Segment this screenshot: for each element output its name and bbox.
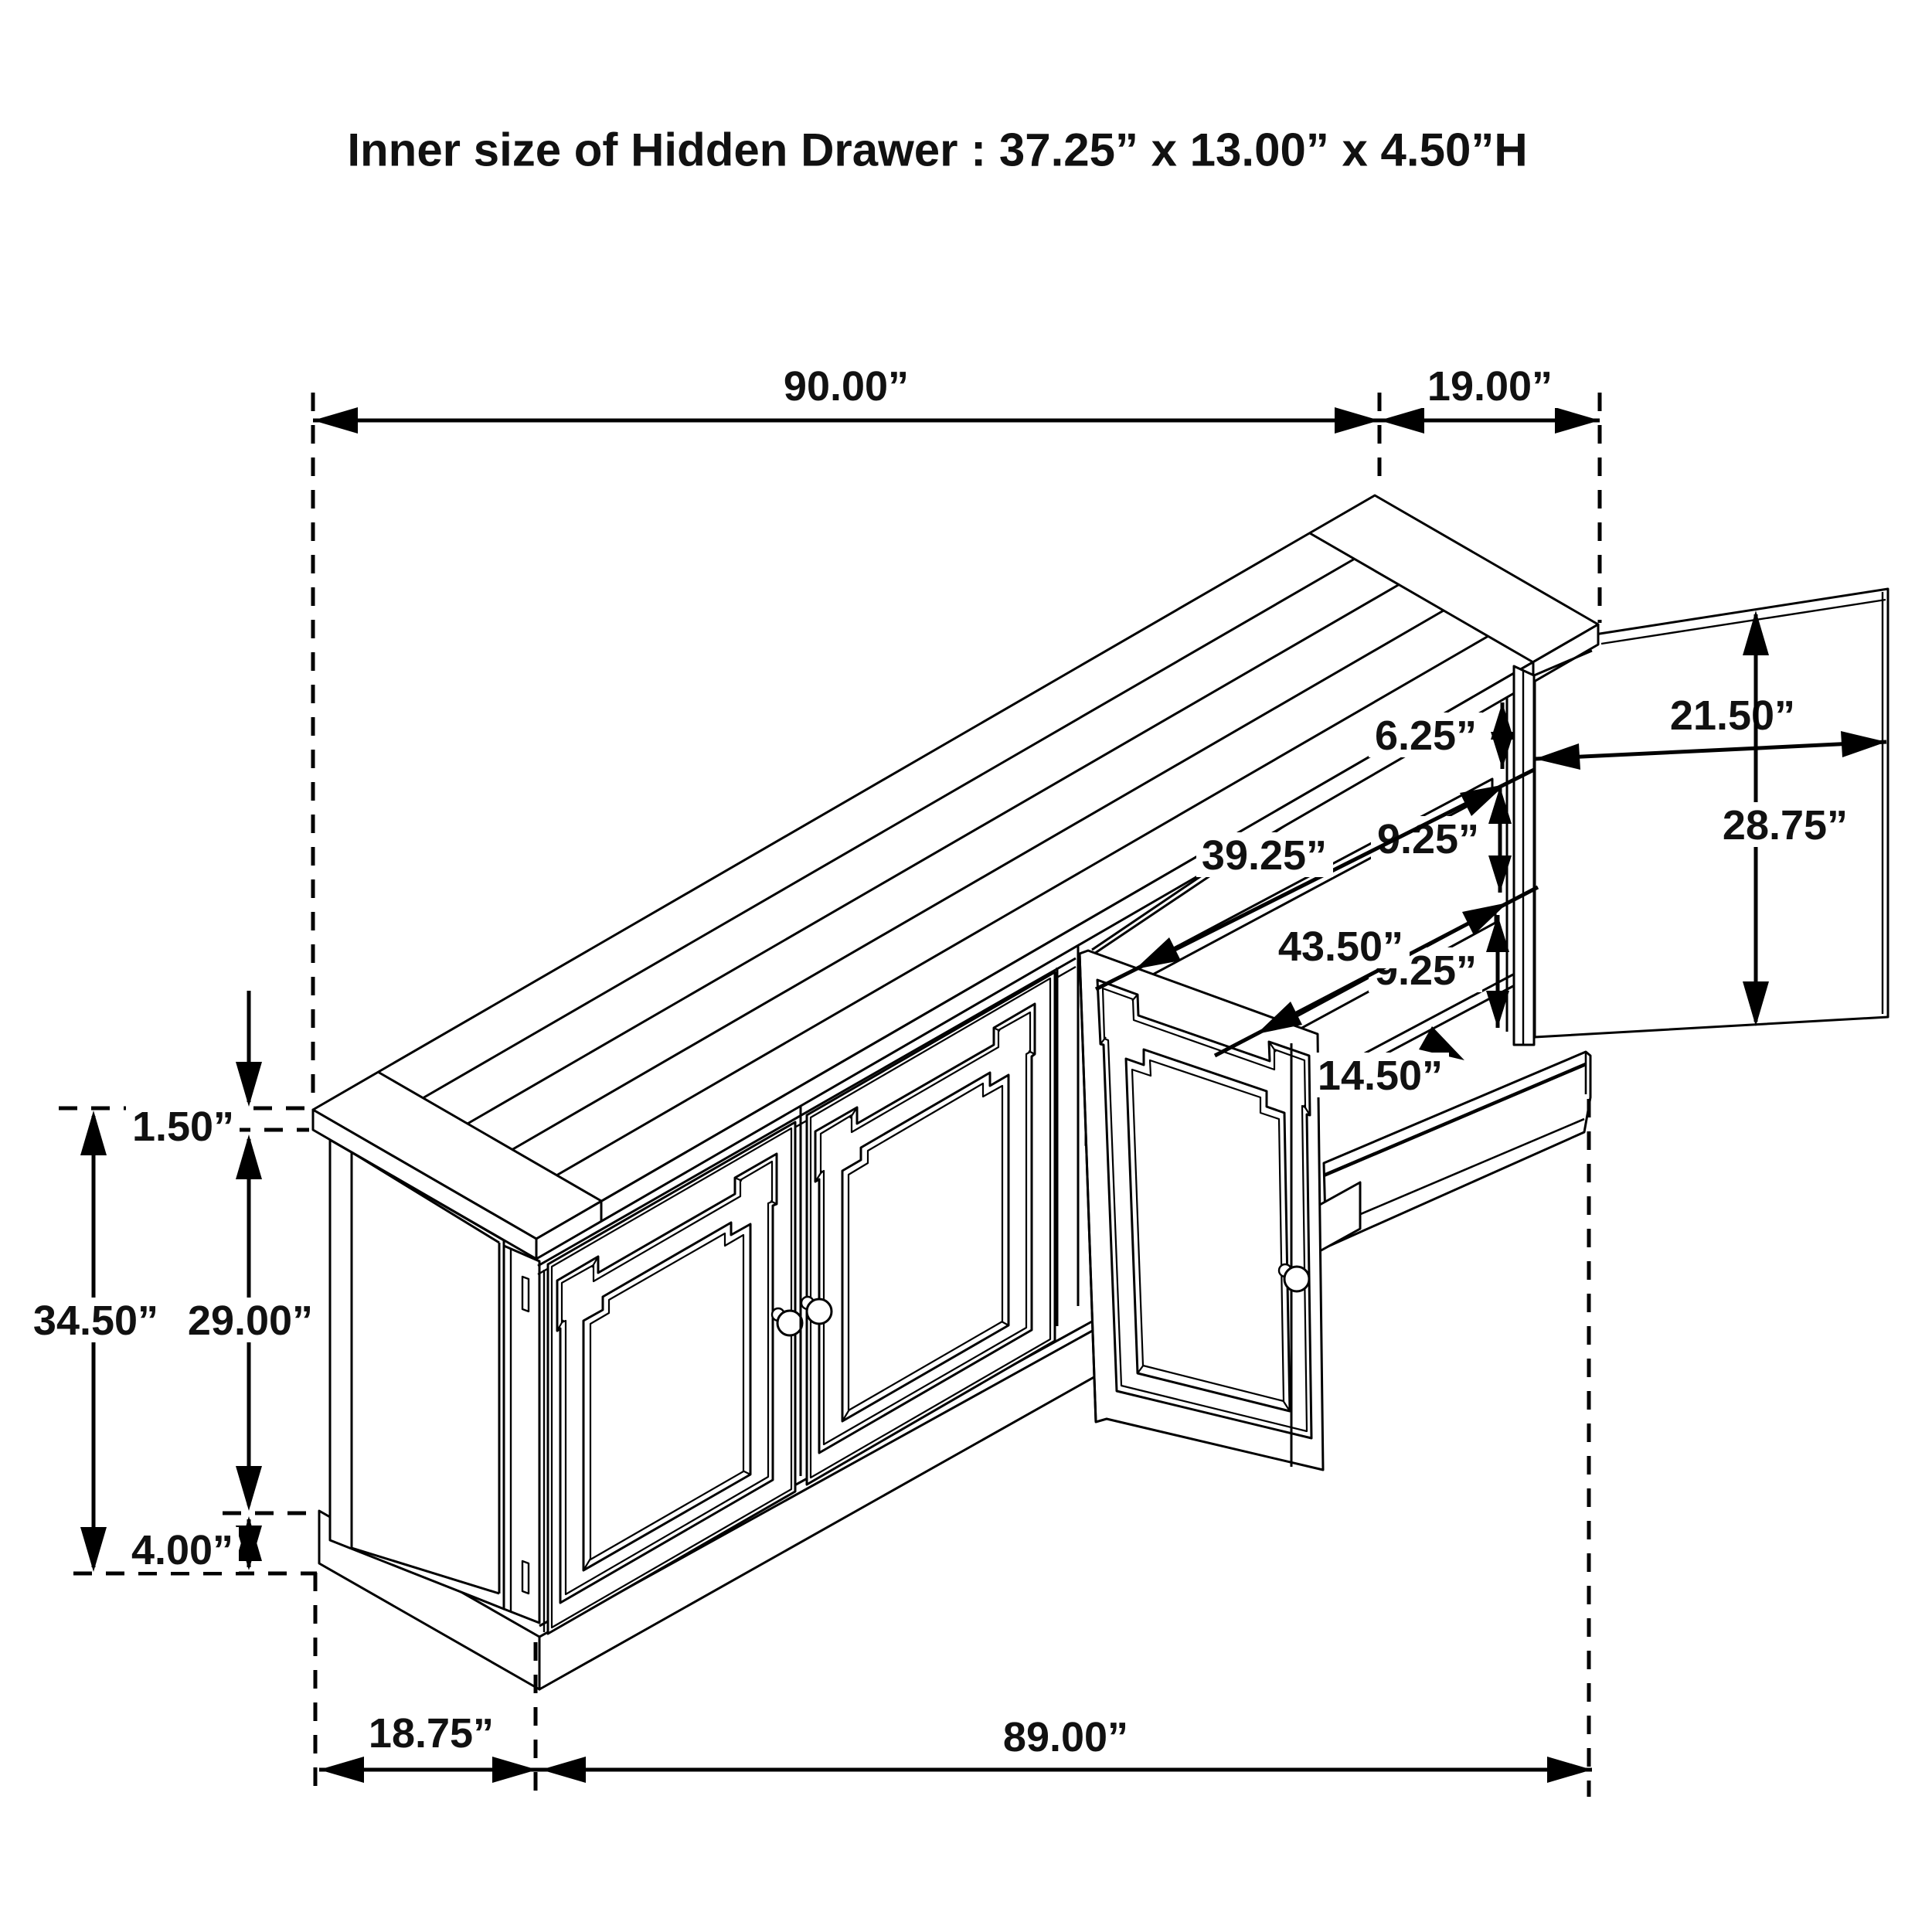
svg-text:1.50”: 1.50” (132, 1104, 234, 1150)
svg-text:34.50”: 34.50” (33, 1298, 158, 1344)
svg-text:89.00”: 89.00” (1003, 1714, 1128, 1760)
svg-text:29.00”: 29.00” (188, 1298, 313, 1344)
svg-text:18.75”: 18.75” (369, 1710, 494, 1757)
svg-text:90.00”: 90.00” (784, 363, 909, 410)
svg-text:21.50”: 21.50” (1670, 692, 1795, 739)
svg-text:14.50”: 14.50” (1318, 1053, 1443, 1099)
svg-text:4.00”: 4.00” (131, 1527, 233, 1573)
svg-text:6.25”: 6.25” (1375, 713, 1477, 759)
svg-text:39.25”: 39.25” (1202, 832, 1327, 879)
svg-text:Inner size of Hidden Drawer :: Inner size of Hidden Drawer : 37.25” x 1… (347, 124, 1527, 176)
svg-text:43.50”: 43.50” (1278, 923, 1403, 970)
svg-text:19.00”: 19.00” (1427, 363, 1553, 410)
svg-text:28.75”: 28.75” (1723, 802, 1848, 849)
